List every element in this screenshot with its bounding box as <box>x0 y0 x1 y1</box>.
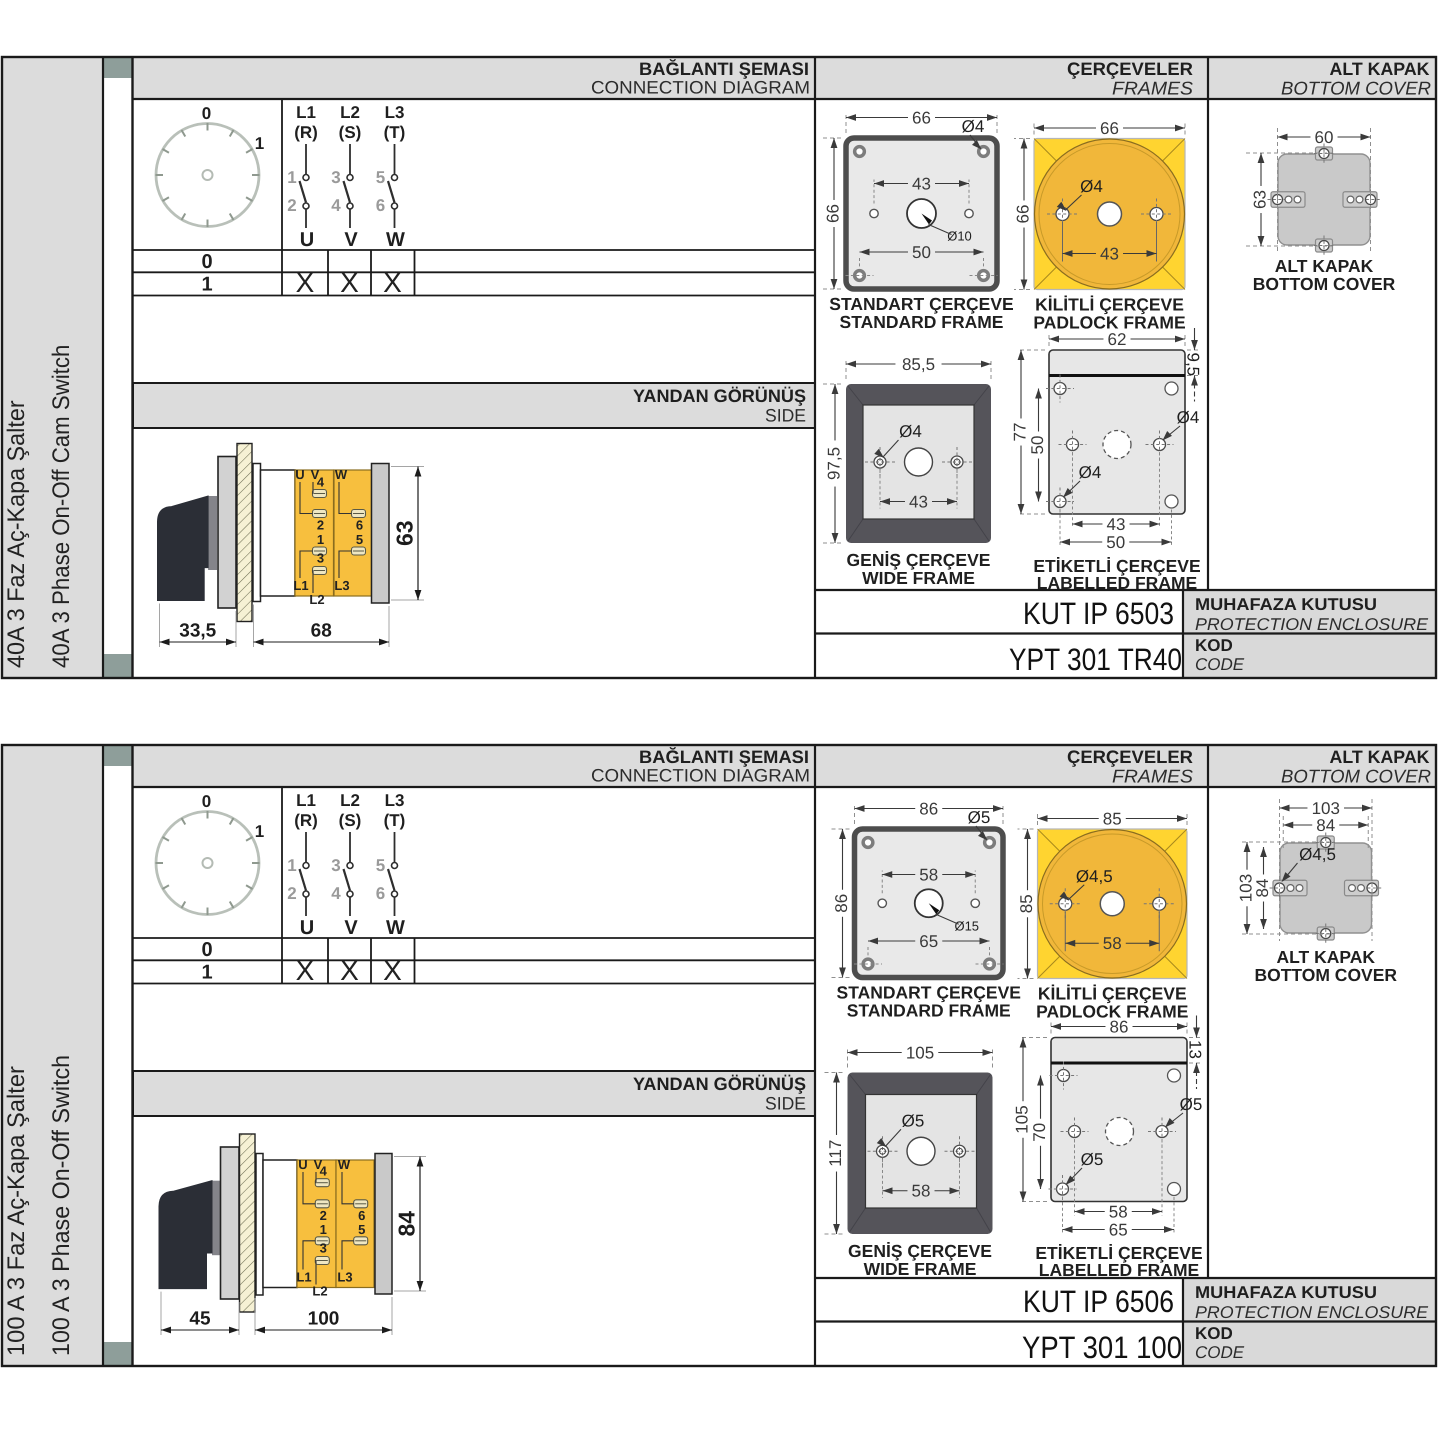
svg-text:1: 1 <box>201 274 212 296</box>
svg-text:W: W <box>335 467 348 482</box>
svg-text:3: 3 <box>317 551 324 566</box>
svg-text:2: 2 <box>287 884 296 903</box>
svg-text:X: X <box>340 267 359 298</box>
svg-text:5: 5 <box>356 532 363 547</box>
svg-text:Ø4: Ø4 <box>1080 177 1103 196</box>
svg-text:L2: L2 <box>340 103 360 122</box>
svg-text:105: 105 <box>906 1043 934 1062</box>
svg-text:58: 58 <box>912 1182 931 1201</box>
svg-text:1: 1 <box>287 168 296 187</box>
svg-text:ÇERÇEVELER: ÇERÇEVELER <box>1067 747 1193 767</box>
svg-text:105: 105 <box>1013 1105 1032 1133</box>
svg-text:L2: L2 <box>312 1284 327 1299</box>
svg-text:70: 70 <box>1030 1123 1049 1142</box>
svg-text:ALT KAPAK: ALT KAPAK <box>1330 747 1430 767</box>
svg-text:FRAMES: FRAMES <box>1112 77 1194 98</box>
svg-text:Ø5: Ø5 <box>1180 1095 1203 1114</box>
svg-text:1: 1 <box>317 532 324 547</box>
svg-text:4: 4 <box>331 884 341 903</box>
svg-text:4: 4 <box>331 196 341 215</box>
svg-text:STANDARD FRAME: STANDARD FRAME <box>847 1001 1011 1021</box>
svg-text:1: 1 <box>287 856 296 875</box>
svg-text:W: W <box>338 1157 351 1172</box>
svg-text:MUHAFAZA KUTUSU: MUHAFAZA KUTUSU <box>1195 595 1377 614</box>
svg-text:X: X <box>383 267 402 298</box>
svg-text:65: 65 <box>1109 1220 1128 1239</box>
svg-text:L2: L2 <box>309 592 324 607</box>
svg-text:SIDE: SIDE <box>765 406 806 426</box>
svg-text:CODE: CODE <box>1195 1343 1245 1362</box>
svg-text:Ø4: Ø4 <box>1079 463 1102 482</box>
svg-text:(S): (S) <box>339 123 362 142</box>
svg-text:0: 0 <box>202 792 211 811</box>
svg-text:66: 66 <box>1014 205 1033 224</box>
svg-text:L3: L3 <box>334 578 349 593</box>
svg-text:3: 3 <box>331 168 340 187</box>
svg-text:6: 6 <box>376 884 385 903</box>
svg-text:YPT 301 100: YPT 301 100 <box>1022 1330 1182 1365</box>
svg-text:WIDE FRAME: WIDE FRAME <box>862 568 975 588</box>
svg-text:L3: L3 <box>337 1270 352 1285</box>
svg-text:85: 85 <box>1017 894 1036 913</box>
svg-text:YANDAN GÖRÜNÜŞ: YANDAN GÖRÜNÜŞ <box>633 386 806 406</box>
svg-text:84: 84 <box>1253 879 1272 898</box>
svg-text:5: 5 <box>376 168 385 187</box>
svg-text:66: 66 <box>1100 119 1119 138</box>
svg-text:62: 62 <box>1108 330 1127 349</box>
svg-text:STANDARD FRAME: STANDARD FRAME <box>840 312 1004 332</box>
svg-text:84: 84 <box>1316 816 1335 835</box>
svg-text:100: 100 <box>308 1309 340 1330</box>
svg-text:U: U <box>298 1157 307 1172</box>
svg-text:YANDAN GÖRÜNÜŞ: YANDAN GÖRÜNÜŞ <box>633 1074 806 1094</box>
svg-text:KİLİTLİ ÇERÇEVE: KİLİTLİ ÇERÇEVE <box>1038 984 1187 1004</box>
svg-text:U: U <box>295 467 304 482</box>
svg-text:50: 50 <box>1106 533 1125 552</box>
svg-text:MUHAFAZA KUTUSU: MUHAFAZA KUTUSU <box>1195 1283 1377 1302</box>
svg-text:50: 50 <box>912 243 931 262</box>
svg-text:BOTTOM COVER: BOTTOM COVER <box>1253 274 1396 294</box>
svg-text:V: V <box>344 229 358 251</box>
svg-text:ALT KAPAK: ALT KAPAK <box>1275 256 1374 276</box>
svg-text:(S): (S) <box>339 811 362 830</box>
svg-text:97,5: 97,5 <box>825 447 844 480</box>
svg-text:5: 5 <box>358 1222 365 1237</box>
svg-text:45: 45 <box>189 1309 211 1330</box>
svg-text:L1: L1 <box>296 1270 311 1285</box>
svg-text:(T): (T) <box>384 123 406 142</box>
svg-text:KUT IP 6506: KUT IP 6506 <box>1023 1284 1174 1319</box>
svg-text:43: 43 <box>912 174 931 193</box>
svg-text:GENİŞ ÇERÇEVE: GENİŞ ÇERÇEVE <box>848 1241 992 1261</box>
svg-text:43: 43 <box>909 492 928 511</box>
svg-text:BOTTOM COVER: BOTTOM COVER <box>1254 965 1397 985</box>
svg-text:85,5: 85,5 <box>902 355 935 374</box>
svg-text:L1: L1 <box>293 578 308 593</box>
svg-text:43: 43 <box>1107 515 1126 534</box>
svg-text:40A 3 Phase On-Off Cam Switch: 40A 3 Phase On-Off Cam Switch <box>48 345 75 668</box>
svg-text:FRAMES: FRAMES <box>1112 765 1194 786</box>
svg-text:W: W <box>386 229 405 251</box>
svg-text:BOTTOM COVER: BOTTOM COVER <box>1281 765 1431 786</box>
svg-text:L3: L3 <box>385 791 405 810</box>
svg-text:58: 58 <box>919 865 938 884</box>
svg-text:1: 1 <box>255 134 264 153</box>
svg-text:63: 63 <box>392 520 418 546</box>
svg-text:1: 1 <box>320 1222 327 1237</box>
svg-text:Ø4: Ø4 <box>899 422 922 441</box>
svg-text:LABELLED FRAME: LABELLED FRAME <box>1037 573 1197 593</box>
svg-text:L1: L1 <box>296 103 316 122</box>
svg-text:86: 86 <box>832 894 851 913</box>
svg-text:2: 2 <box>317 518 324 533</box>
svg-text:6: 6 <box>376 196 385 215</box>
svg-text:40A 3 Faz Aç-Kapa Şalter: 40A 3 Faz Aç-Kapa Şalter <box>3 400 30 668</box>
svg-text:CONNECTION DIAGRAM: CONNECTION DIAGRAM <box>591 78 810 98</box>
svg-text:3: 3 <box>331 856 340 875</box>
svg-text:Ø4: Ø4 <box>1177 408 1200 427</box>
svg-text:4: 4 <box>320 1164 328 1179</box>
svg-text:5: 5 <box>376 856 385 875</box>
svg-text:KİLİTLİ ÇERÇEVE: KİLİTLİ ÇERÇEVE <box>1035 295 1184 315</box>
svg-text:Ø4: Ø4 <box>962 117 985 136</box>
svg-text:L2: L2 <box>340 791 360 810</box>
svg-text:STANDART ÇERÇEVE: STANDART ÇERÇEVE <box>837 983 1021 1003</box>
svg-text:X: X <box>383 955 402 986</box>
svg-text:Ø4,5: Ø4,5 <box>1299 845 1336 864</box>
svg-text:KUT IP 6503: KUT IP 6503 <box>1023 596 1174 631</box>
svg-text:86: 86 <box>919 799 938 818</box>
svg-text:117: 117 <box>826 1140 845 1167</box>
svg-text:ALT KAPAK: ALT KAPAK <box>1276 947 1375 967</box>
svg-text:84: 84 <box>394 1211 420 1237</box>
svg-text:100 A 3 Phase On-Off Switch: 100 A 3 Phase On-Off Switch <box>48 1055 75 1356</box>
svg-text:GENİŞ ÇERÇEVE: GENİŞ ÇERÇEVE <box>847 550 991 570</box>
svg-text:X: X <box>340 955 359 986</box>
svg-text:3: 3 <box>320 1241 327 1256</box>
svg-text:86: 86 <box>1110 1017 1129 1036</box>
svg-text:1: 1 <box>255 822 264 841</box>
svg-text:2: 2 <box>287 196 296 215</box>
svg-text:U: U <box>300 917 314 939</box>
svg-text:KOD: KOD <box>1195 636 1233 655</box>
svg-text:85: 85 <box>1103 809 1122 828</box>
svg-text:(R): (R) <box>294 123 318 142</box>
svg-text:Ø15: Ø15 <box>954 918 979 933</box>
svg-text:13: 13 <box>1186 1040 1205 1059</box>
svg-text:CODE: CODE <box>1195 655 1245 674</box>
svg-text:Ø4,5: Ø4,5 <box>1076 867 1113 886</box>
svg-text:YPT 301 TR40: YPT 301 TR40 <box>1009 642 1182 677</box>
svg-text:65: 65 <box>919 932 938 951</box>
svg-text:KOD: KOD <box>1195 1324 1233 1343</box>
svg-text:66: 66 <box>912 108 931 127</box>
svg-text:Ø10: Ø10 <box>947 229 972 244</box>
svg-text:100 A 3 Faz Aç-Kapa Şalter: 100 A 3 Faz Aç-Kapa Şalter <box>3 1066 30 1356</box>
svg-text:60: 60 <box>1315 128 1334 147</box>
svg-text:4: 4 <box>317 475 325 490</box>
svg-text:STANDART ÇERÇEVE: STANDART ÇERÇEVE <box>829 294 1013 314</box>
svg-text:ALT KAPAK: ALT KAPAK <box>1330 59 1430 79</box>
svg-text:58: 58 <box>1103 934 1122 953</box>
svg-text:66: 66 <box>824 204 843 223</box>
svg-text:X: X <box>296 955 315 986</box>
svg-text:0: 0 <box>202 104 211 123</box>
svg-text:58: 58 <box>1109 1202 1128 1221</box>
svg-text:6: 6 <box>356 518 363 533</box>
svg-text:LABELLED FRAME: LABELLED FRAME <box>1039 1260 1199 1280</box>
svg-text:(T): (T) <box>384 811 406 830</box>
svg-text:63: 63 <box>1251 190 1270 209</box>
svg-text:WIDE FRAME: WIDE FRAME <box>864 1259 977 1279</box>
svg-text:Ø5: Ø5 <box>1081 1150 1104 1169</box>
svg-text:(R): (R) <box>294 811 318 830</box>
svg-text:77: 77 <box>1011 423 1030 442</box>
svg-text:Ø5: Ø5 <box>902 1111 925 1130</box>
svg-text:0: 0 <box>201 251 212 273</box>
svg-text:L1: L1 <box>296 791 316 810</box>
svg-text:PROTECTION ENCLOSURE: PROTECTION ENCLOSURE <box>1195 1303 1429 1322</box>
svg-text:Ø5: Ø5 <box>968 808 991 827</box>
svg-text:X: X <box>296 267 315 298</box>
svg-text:2: 2 <box>320 1208 327 1223</box>
svg-text:ÇERÇEVELER: ÇERÇEVELER <box>1067 59 1193 79</box>
svg-text:U: U <box>300 229 314 251</box>
svg-text:BAĞLANTI ŞEMASI: BAĞLANTI ŞEMASI <box>639 747 809 767</box>
svg-text:1: 1 <box>201 962 212 984</box>
svg-text:L3: L3 <box>385 103 405 122</box>
svg-text:BAĞLANTI ŞEMASI: BAĞLANTI ŞEMASI <box>639 59 809 79</box>
svg-text:W: W <box>386 917 405 939</box>
svg-text:68: 68 <box>311 621 332 642</box>
svg-text:50: 50 <box>1028 436 1047 455</box>
svg-text:SIDE: SIDE <box>765 1094 806 1114</box>
svg-text:43: 43 <box>1100 244 1119 263</box>
svg-text:0: 0 <box>201 939 212 961</box>
svg-text:CONNECTION DIAGRAM: CONNECTION DIAGRAM <box>591 766 810 786</box>
svg-text:V: V <box>344 917 358 939</box>
svg-text:33,5: 33,5 <box>179 621 216 642</box>
svg-text:BOTTOM COVER: BOTTOM COVER <box>1281 77 1431 98</box>
svg-text:PROTECTION ENCLOSURE: PROTECTION ENCLOSURE <box>1195 615 1429 634</box>
svg-text:6: 6 <box>358 1208 365 1223</box>
svg-text:9,5: 9,5 <box>1184 353 1203 377</box>
